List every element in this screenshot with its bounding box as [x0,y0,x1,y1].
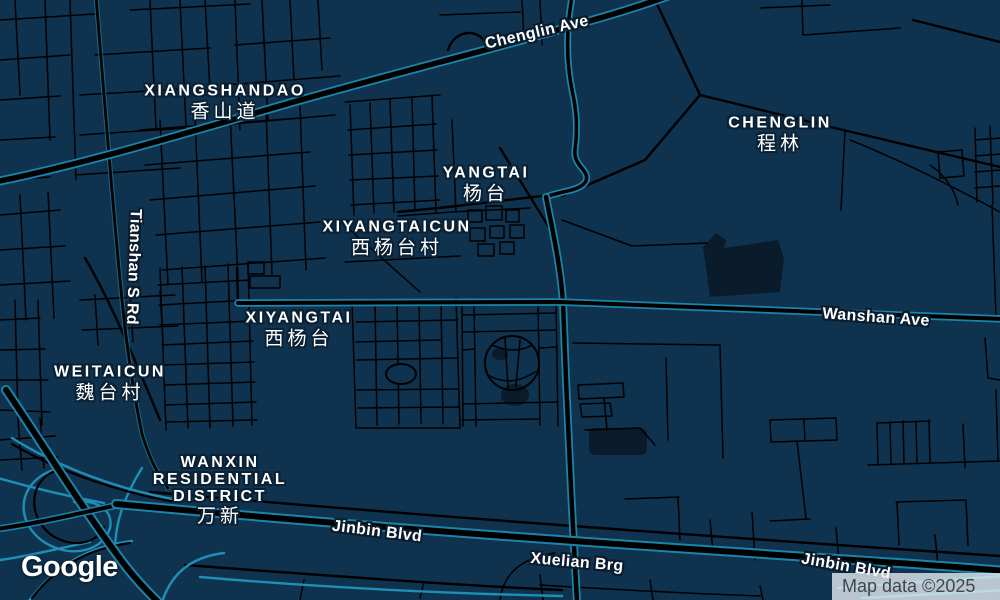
place-name-cjk: 杨台 [443,184,530,204]
place-name-line2: RESIDENTIAL [153,472,287,489]
place-name-line3: DISTRICT [153,488,287,505]
place-label-weitaicun: WEITAICUN 魏台村 [54,365,166,404]
place-name-cjk: 西杨台村 [322,238,471,258]
place-label-yangtai: YANGTAI 杨台 [443,166,530,205]
place-name-cjk: 西杨台 [246,329,353,349]
place-name: WEITAICUN [54,365,166,382]
map-attribution-text: Map data ©2025 [842,576,975,597]
map-attribution: Map data ©2025 [832,573,1000,600]
place-label-wanxin-residential-district: WANXIN RESIDENTIAL DISTRICT 万新 [153,455,287,527]
place-name: XIYANGTAI [246,311,353,328]
place-label-xiyangtaicun: XIYANGTAICUN 西杨台村 [322,220,471,259]
place-name: XIYANGTAICUN [322,220,471,237]
place-label-xiangshandao: XIANGSHANDAO 香山道 [144,84,306,123]
place-name-cjk: 程林 [728,134,832,154]
place-name: XIANGSHANDAO [144,84,306,101]
place-name-cjk: 香山道 [144,102,306,122]
place-name: CHENGLIN [728,116,832,133]
google-logo[interactable]: Google [21,551,118,584]
place-name-cjk: 魏台村 [54,383,166,403]
google-maps-dark-view[interactable]: XIANGSHANDAO 香山道 YANGTAI 杨台 XIYANGTAICUN… [0,0,1000,600]
place-name: YANGTAI [443,166,530,183]
place-name-line1: WANXIN [153,455,287,472]
place-label-chenglin: CHENGLIN 程林 [728,116,832,155]
place-label-xiyangtai: XIYANGTAI 西杨台 [246,311,353,350]
place-name-cjk: 万新 [153,507,287,527]
